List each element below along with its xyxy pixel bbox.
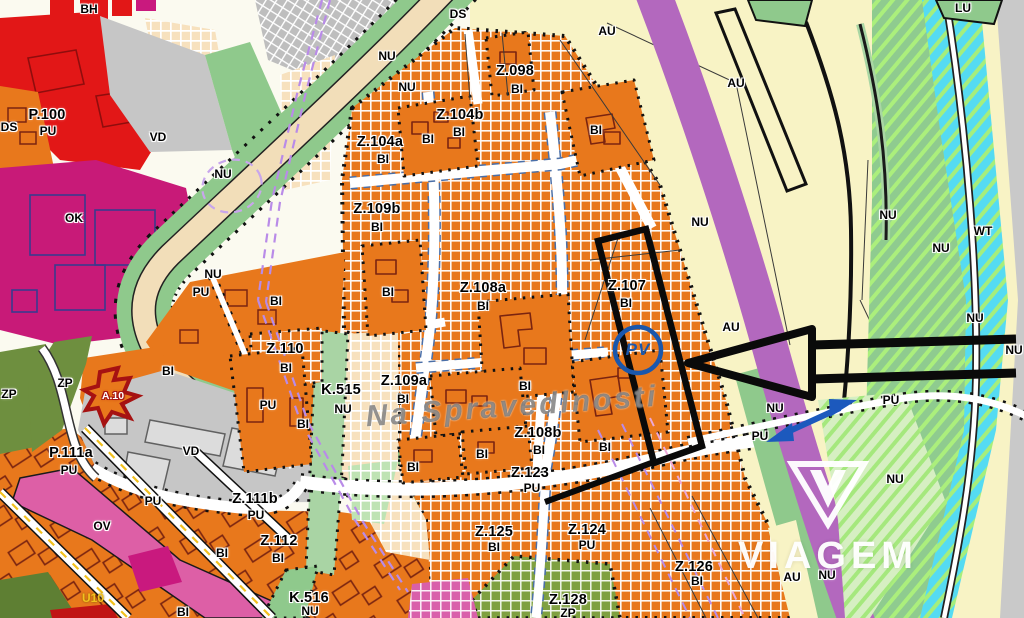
zone-label-z-104a: Z.104a — [357, 134, 403, 150]
zone-label-p-111a: P.111a — [49, 445, 93, 461]
zone-label-z-124: Z.124 — [568, 522, 606, 538]
zone-label-z-109b: Z.109b — [353, 201, 400, 217]
use-label-lu: LU — [955, 1, 971, 15]
use-label-pu: PU — [61, 463, 78, 477]
use-label-bi: BI — [476, 447, 488, 461]
use-label-bi: BI — [620, 296, 632, 310]
use-label-nu: NU — [766, 401, 783, 415]
use-label-bi: BI — [599, 440, 611, 454]
use-label-wt: WT — [974, 224, 993, 238]
use-label-nu: NU — [378, 49, 395, 63]
use-label-u10: U10 — [82, 591, 104, 605]
use-label-nu: NU — [1005, 343, 1022, 357]
use-label-bi: BI — [488, 540, 500, 554]
use-label-ok: OK — [65, 211, 83, 225]
use-label-bh: BH — [80, 2, 97, 16]
use-label-ds: DS — [450, 7, 467, 21]
use-label-pu: PU — [883, 393, 900, 407]
viagem-watermark: VIAGEM — [738, 458, 918, 578]
zone-label-z-112: Z.112 — [260, 533, 297, 549]
use-label-bi: BI — [162, 364, 174, 378]
use-label-bi: BI — [177, 605, 189, 618]
use-label-nu: NU — [691, 215, 708, 229]
use-label-bi: BI — [216, 546, 228, 560]
use-label-nu: NU — [334, 402, 351, 416]
use-label-bi: BI — [590, 123, 602, 137]
use-label-nu: NU — [966, 311, 983, 325]
use-label-zp: ZP — [1, 387, 16, 401]
use-label-bi: BI — [280, 361, 292, 375]
use-label-bi: BI — [270, 294, 282, 308]
use-label-ov: OV — [93, 519, 110, 533]
use-label-bi: BI — [377, 152, 389, 166]
use-label-au: AU — [727, 76, 744, 90]
use-label-a-10: A.10 — [102, 390, 124, 402]
use-label-pu: PU — [248, 508, 265, 522]
use-label-pu: PU — [260, 398, 277, 412]
zone-label-z-104b: Z.104b — [436, 107, 483, 123]
use-label-bi: BI — [691, 574, 703, 588]
use-label-bi: BI — [297, 417, 309, 431]
marker-label-pv: PV — [626, 340, 651, 360]
use-label-vd: VD — [183, 444, 200, 458]
use-label-pu: PU — [40, 124, 57, 138]
viagem-logo-icon — [780, 458, 876, 530]
use-label-bi: BI — [511, 82, 523, 96]
use-label-nu: NU — [398, 80, 415, 94]
use-label-vd: VD — [150, 130, 167, 144]
zone-label-z-123: Z.123 — [511, 465, 549, 481]
use-label-au: AU — [598, 24, 615, 38]
use-label-bi: BI — [422, 132, 434, 146]
use-label-zp: ZP — [57, 376, 72, 390]
zone-label-z-107: Z.107 — [608, 278, 646, 294]
use-label-pu: PU — [524, 481, 541, 495]
zone-label-k-515: K.515 — [321, 382, 361, 398]
use-label-nu: NU — [204, 267, 221, 281]
use-label-au: AU — [722, 320, 739, 334]
use-label-pu: PU — [579, 538, 596, 552]
use-label-bi: BI — [371, 220, 383, 234]
zone-label-z-125: Z.125 — [475, 524, 513, 540]
zone-label-z-109a: Z.109a — [381, 373, 427, 389]
use-label-nu: NU — [932, 241, 949, 255]
use-label-bi: BI — [533, 443, 545, 457]
use-label-bi: BI — [382, 285, 394, 299]
zone-label-z-111b: Z.111b — [232, 491, 278, 507]
use-label-pu: PU — [752, 429, 769, 443]
use-label-bi: BI — [453, 125, 465, 139]
zone-label-z-098: Z.098 — [496, 63, 534, 79]
zone-label-p-100: P.100 — [28, 107, 65, 123]
use-label-zp: ZP — [560, 606, 575, 618]
zone-label-z-108a: Z.108a — [460, 280, 506, 296]
zone-label-z-108b: Z.108b — [514, 425, 561, 441]
use-label-nu: NU — [879, 208, 896, 222]
use-label-nu: NU — [301, 604, 318, 618]
zone-label-z-126: Z.126 — [675, 559, 713, 575]
use-label-nu: NU — [214, 167, 231, 181]
use-label-ds: DS — [1, 120, 18, 134]
zone-label-z-110: Z.110 — [266, 341, 303, 357]
use-label-bi: BI — [477, 299, 489, 313]
use-label-pu: PU — [193, 285, 210, 299]
zoning-map[interactable]: BHP.100PUDSVDOKNUDSNUNUAUAULUZ.098BIBIZ.… — [0, 0, 1024, 618]
use-label-pu: PU — [145, 494, 162, 508]
viagem-watermark-text: VIAGEM — [738, 535, 918, 578]
use-label-bi: BI — [272, 551, 284, 565]
use-label-bi: BI — [407, 460, 419, 474]
